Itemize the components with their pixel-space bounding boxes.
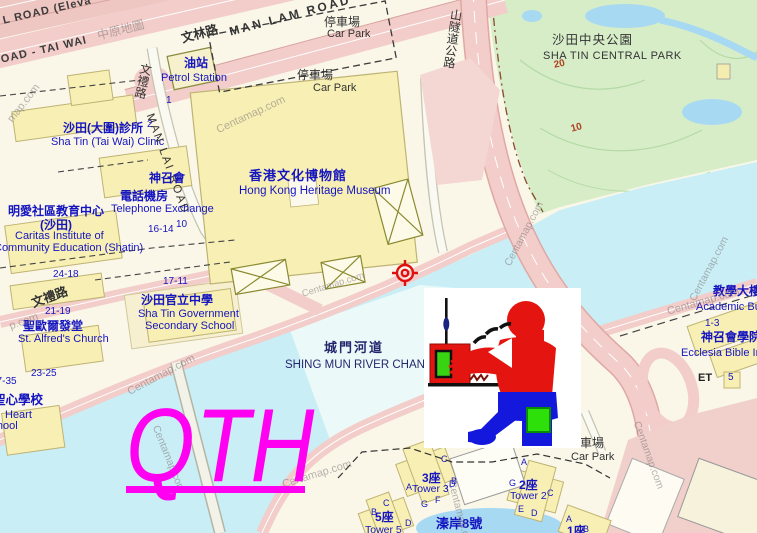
map-canvas[interactable]: L ROAD (ElevaOAD - TAI WAI文林路MAN LAM ROA… [0,0,757,533]
qth-underline [126,486,305,493]
map-base-art [0,0,757,533]
qth-annotation: QTH [126,394,315,498]
ham-radio-operator-image [424,288,581,448]
target-crosshair-icon [392,260,418,286]
park-pond [585,4,665,28]
